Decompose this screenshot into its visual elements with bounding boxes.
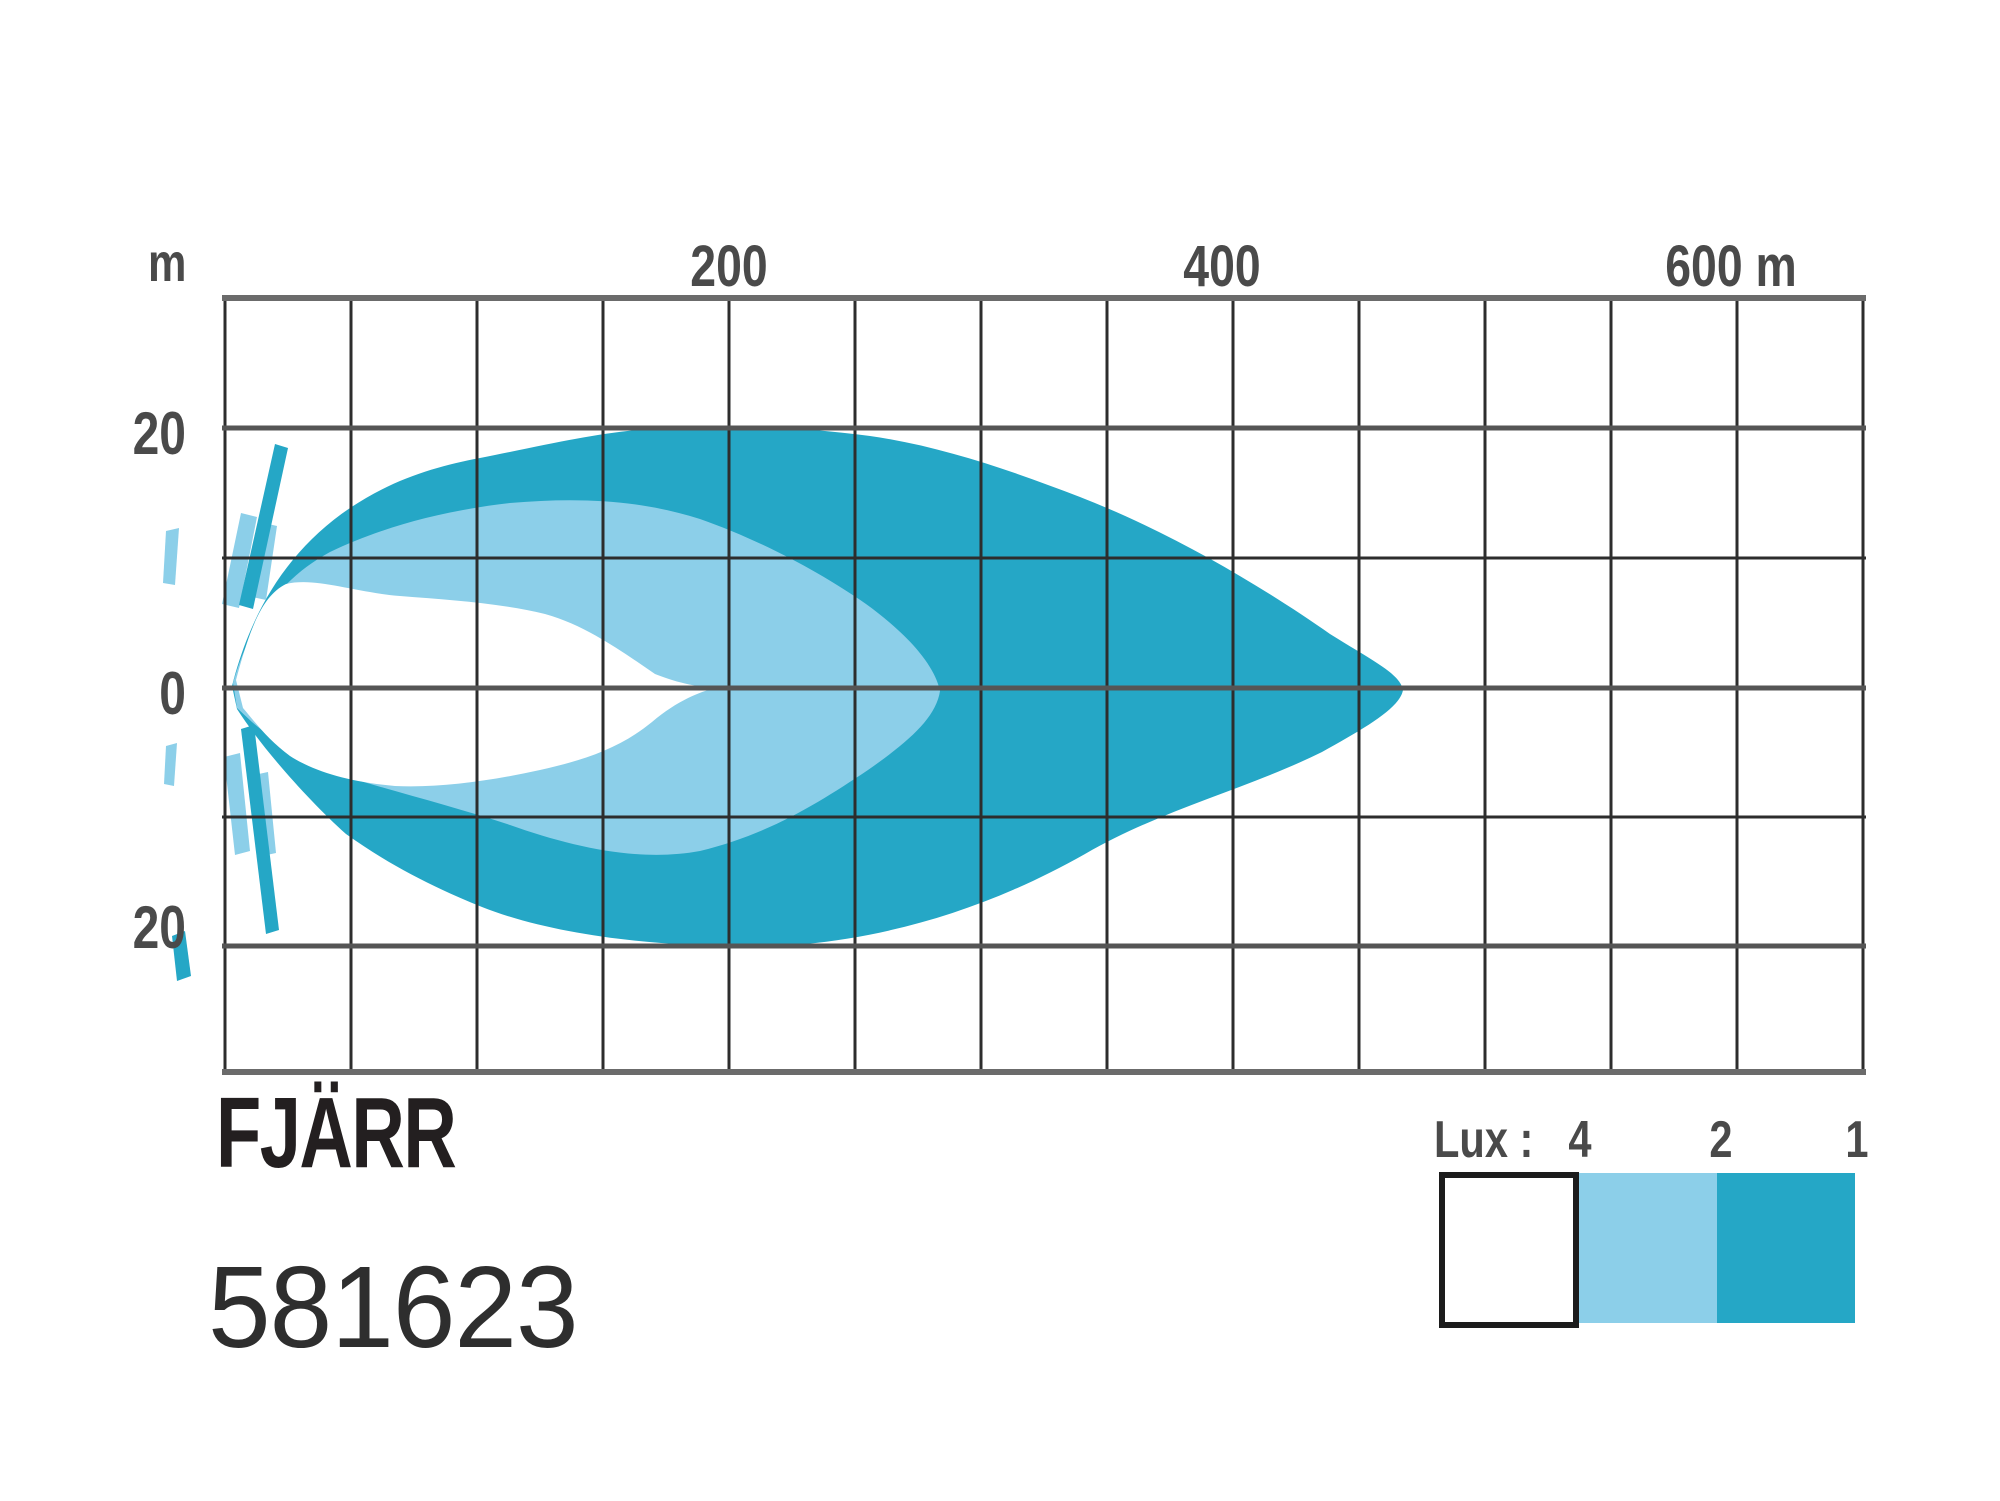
beam-pattern-chart: m 200 400 600 m 20 0 20 FJÄRR 581623 Lux… [0,0,2000,1501]
chart-title: FJÄRR [216,1076,455,1191]
x-tick-400: 400 [1183,238,1260,296]
product-number: 581623 [208,1240,578,1374]
legend-value-4: 4 [1568,1114,1591,1166]
legend-swatch-2lux [1579,1173,1717,1323]
legend-value-2: 2 [1709,1114,1732,1166]
x-tick-600m: 600 m [1665,238,1797,296]
legend-swatch-4lux [1442,1175,1576,1325]
top-axis-unit-label: m [148,236,186,290]
legend-label: Lux : [1434,1114,1533,1166]
y-tick-zero: 0 [106,664,186,724]
legend-swatch-1lux [1717,1173,1855,1323]
y-tick-plus20: 20 [106,404,186,464]
legend-value-1: 1 [1845,1114,1868,1166]
y-tick-minus20: 20 [106,898,186,958]
legend-swatches [1442,1173,1855,1325]
x-tick-200: 200 [690,238,767,296]
